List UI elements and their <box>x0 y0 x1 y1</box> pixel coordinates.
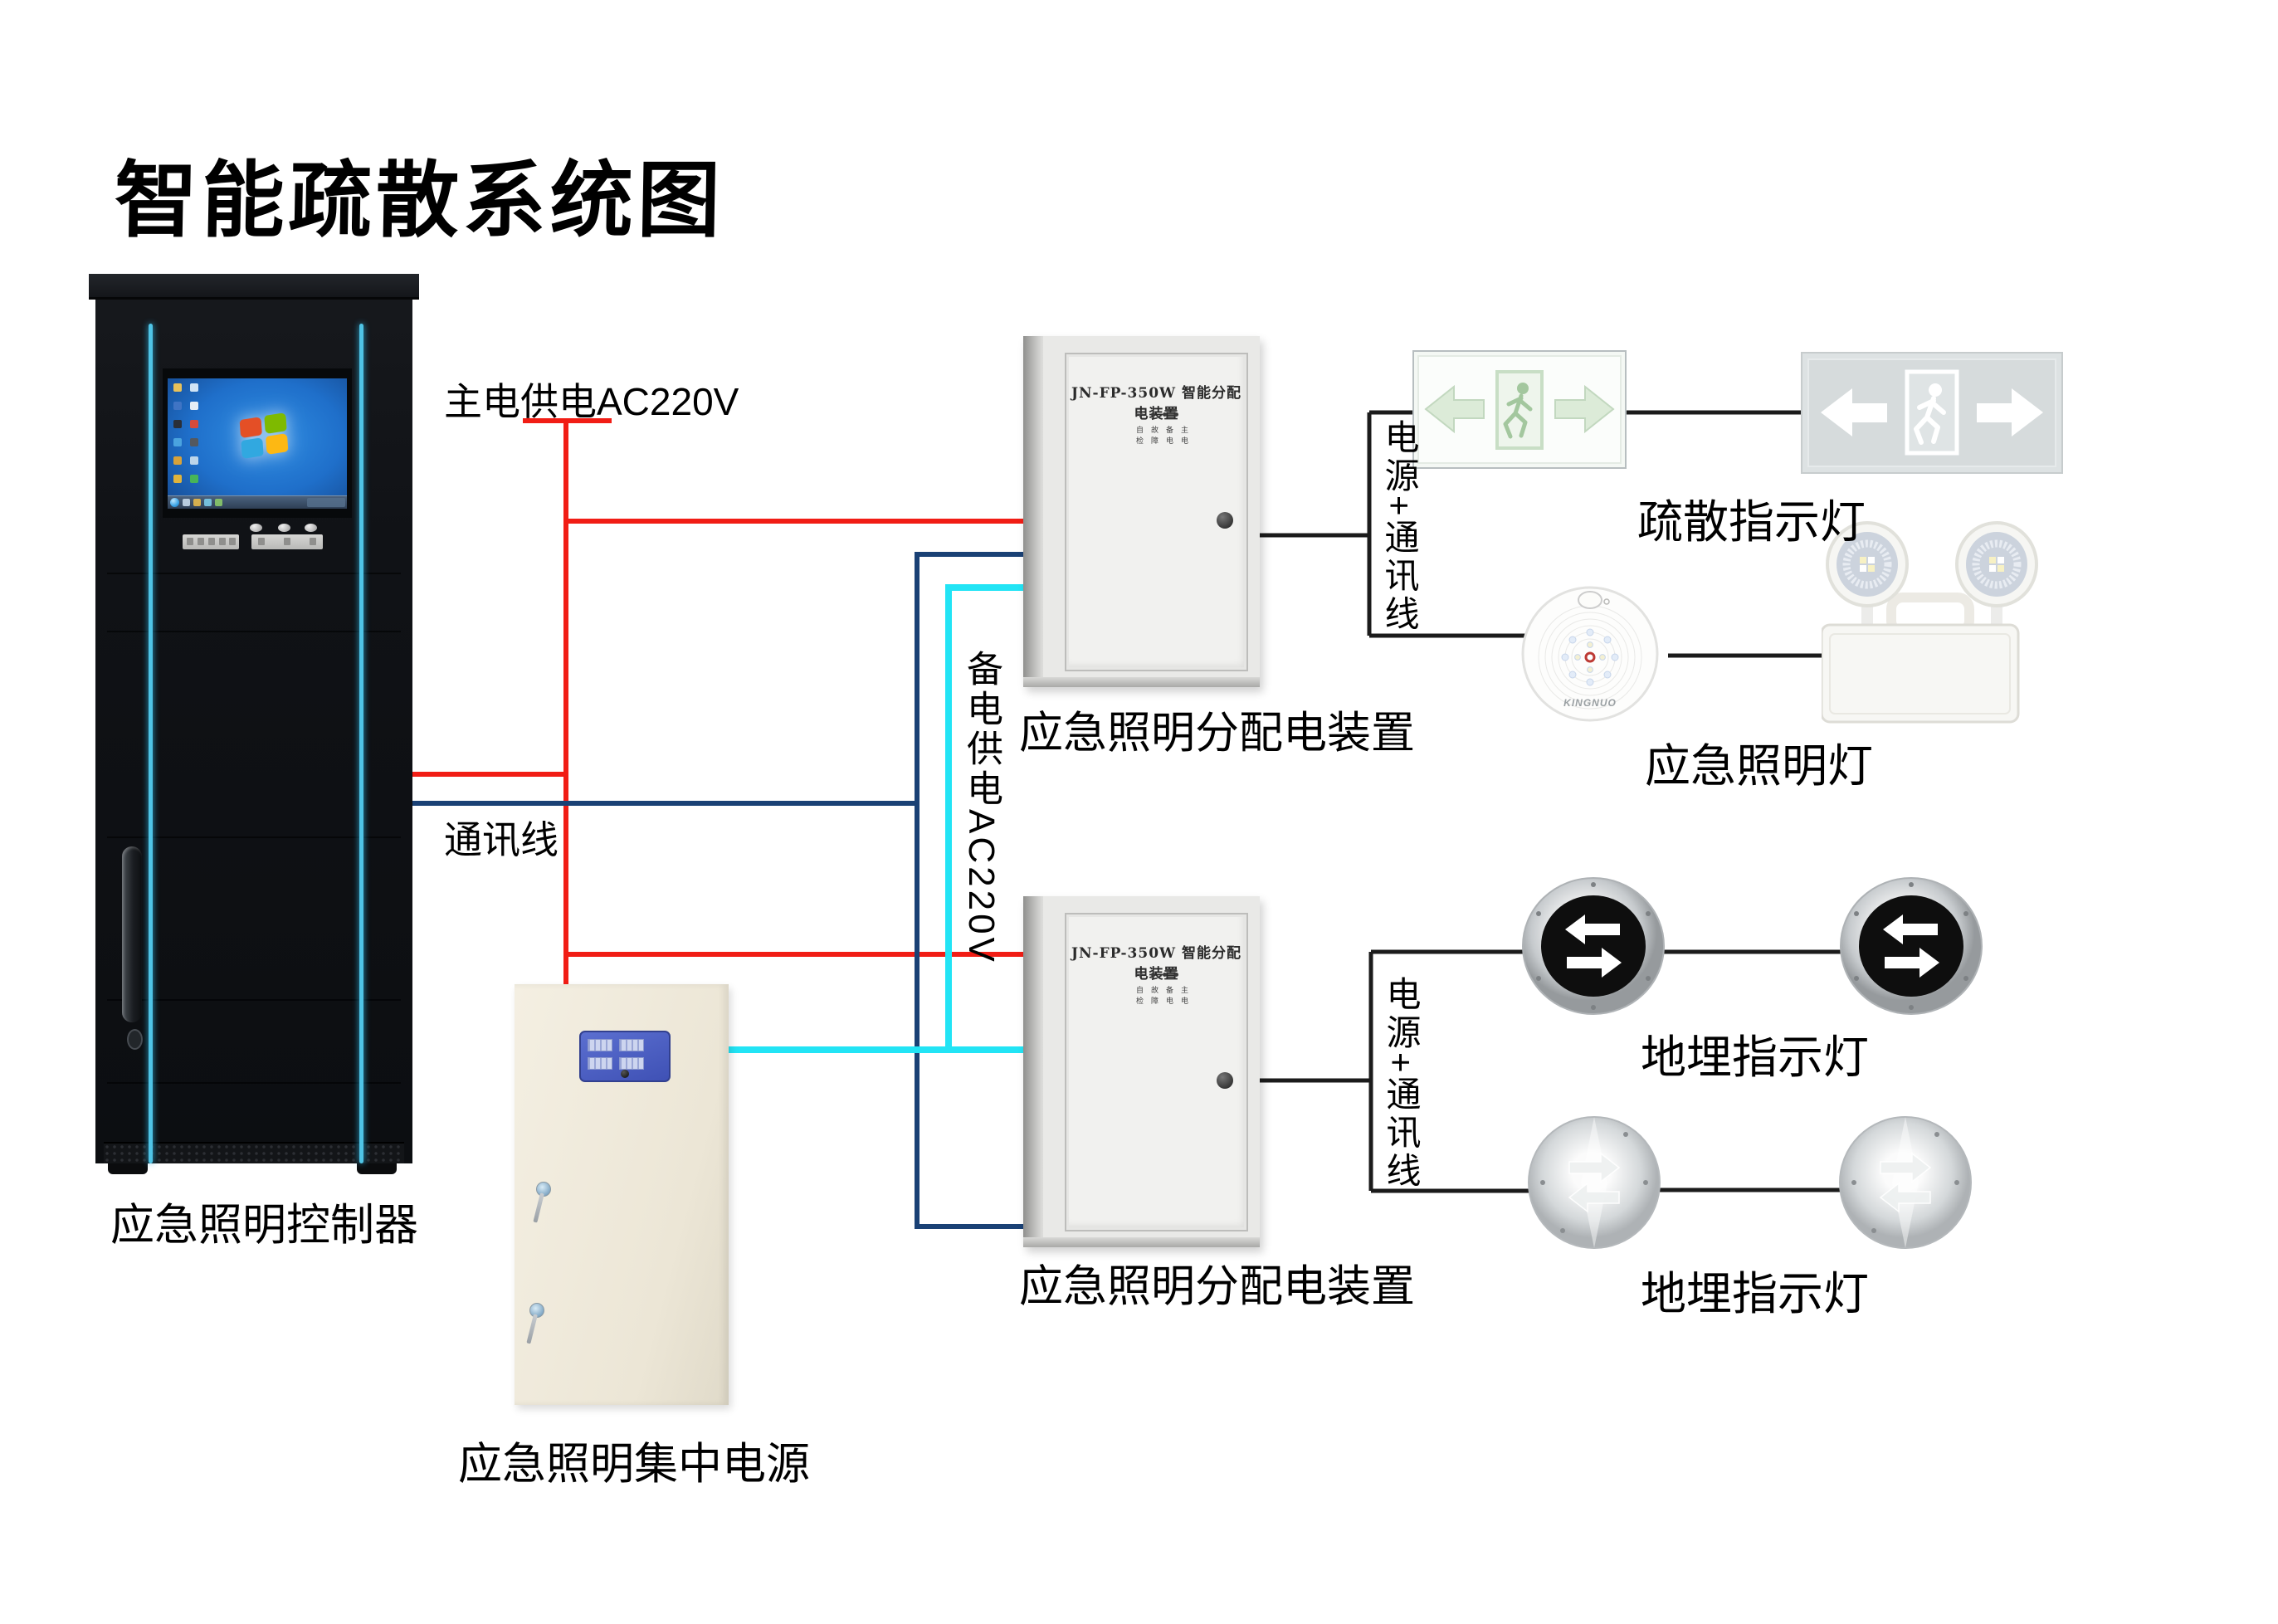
distribution-box-1: JN-FP-350W 智能分配电装置 ✛ 自故备主 检障电电 <box>1023 336 1260 687</box>
digital-display <box>619 1039 644 1051</box>
label-power-comm-1: 电源+通讯线 <box>1374 419 1425 634</box>
desktop-icon <box>173 383 182 392</box>
box-led-indicators: ✛ <box>1136 969 1178 980</box>
taskbar-icon <box>215 499 222 506</box>
desktop-icon <box>173 420 182 428</box>
key-icon <box>533 1192 544 1222</box>
system-tray <box>307 498 345 507</box>
cabinet-knob <box>278 524 290 532</box>
label-power-comm-2: 电源+通讯线 <box>1376 976 1427 1191</box>
taskbar-icon <box>193 499 201 506</box>
emergency-ceiling-lamp: KINGNUO <box>1521 585 1659 723</box>
running-man-icon <box>1907 372 1957 453</box>
box-indicator-label: 检障电电 <box>1136 995 1202 1006</box>
label-exit-sign: 疏散指示灯 <box>1637 485 1866 551</box>
box-indicator-label: 检障电电 <box>1136 435 1202 446</box>
desktop-icon <box>173 438 182 446</box>
twin-head-emergency-light <box>1822 521 2039 725</box>
ground-light-black-1 <box>1522 876 1665 1016</box>
label-main-power: 主电供电AC220V <box>444 372 739 427</box>
cabinet-knob <box>250 524 262 532</box>
cabinet-foot <box>108 1163 148 1174</box>
desktop-icon <box>190 420 198 428</box>
digital-display <box>588 1057 612 1070</box>
label-backup-power: 备电供电AC220V <box>954 650 1007 965</box>
desktop-icon <box>190 383 198 392</box>
ground-light-steel-2 <box>1839 1116 1972 1249</box>
taskbar-icon <box>183 499 190 506</box>
label-distribution-1: 应急照明分配电装置 <box>1019 698 1415 761</box>
desktop-icon <box>173 456 182 465</box>
label-distribution-2: 应急照明分配电装置 <box>1019 1251 1415 1314</box>
desktop-icon <box>190 475 198 483</box>
box-bottom-edge <box>1023 1237 1260 1247</box>
taskbar-icon <box>204 499 212 506</box>
running-man-icon <box>1497 372 1542 448</box>
box-indicator-label: 自故备主 <box>1136 424 1202 435</box>
box-indicator-label: 自故备主 <box>1136 984 1202 995</box>
lamp-head-right <box>1957 523 2037 606</box>
cabinet-keyhole <box>127 1029 143 1050</box>
cabinet-accent-right <box>359 324 363 1163</box>
box-side-panel <box>1023 336 1043 687</box>
windows-desktop-screen <box>168 378 347 509</box>
taskbar <box>168 495 347 509</box>
box-door: JN-FP-350W 智能分配电装置 ✛ 自故备主 检障电电 <box>1065 913 1248 1231</box>
box-bottom-edge <box>1023 677 1260 687</box>
lamp-test-button <box>1578 592 1602 608</box>
cabinet-door-handle <box>122 846 142 1022</box>
distribution-box-2: JN-FP-350W 智能分配电装置 ✛ 自故备主 检障电电 <box>1023 896 1260 1247</box>
box-led-indicators: ✛ <box>1136 409 1178 420</box>
label-ground-light-1: 地埋指示灯 <box>1641 1020 1869 1086</box>
desktop-icon <box>173 402 182 410</box>
panel-knob <box>621 1070 629 1078</box>
box-door: JN-FP-350W 智能分配电装置 ✛ 自故备主 检障电电 <box>1065 353 1248 671</box>
label-comm-line: 通讯线 <box>444 810 559 865</box>
central-power-box <box>515 984 729 1405</box>
power-box-keylock <box>536 1182 551 1197</box>
digital-display <box>619 1057 644 1070</box>
box-side-panel <box>1023 896 1043 1247</box>
cabinet-knob <box>305 524 317 532</box>
cabinet-socket-strip <box>183 534 239 549</box>
desktop-icon <box>190 402 198 410</box>
desktop-icon <box>173 475 182 483</box>
label-emergency-light: 应急照明灯 <box>1645 729 1873 795</box>
digital-display <box>588 1039 612 1051</box>
start-orb-icon <box>170 498 179 507</box>
power-box-keylock <box>529 1303 544 1318</box>
diagram-canvas: 智能疏散系统图 <box>0 0 2278 1624</box>
battery-body <box>1822 625 2018 722</box>
cabinet-accent-left <box>149 324 153 1163</box>
cabinet-foot <box>357 1163 397 1174</box>
label-ground-light-2: 地埋指示灯 <box>1641 1256 1869 1323</box>
power-box-control-panel <box>579 1031 671 1082</box>
controller-cabinet <box>95 276 412 1163</box>
key-icon <box>526 1314 538 1344</box>
lamp-center-dot <box>1586 653 1594 661</box>
ground-light-black-2 <box>1840 876 1983 1016</box>
desktop-icon <box>190 456 198 465</box>
ground-light-steel-1 <box>1528 1116 1661 1249</box>
box-lock-knob <box>1217 512 1233 529</box>
cabinet-top-cap <box>89 274 419 300</box>
lamp-brand-text: KINGNUO <box>1563 697 1617 709</box>
cabinet-socket-strip <box>251 534 323 549</box>
label-central-power: 应急照明集中电源 <box>458 1429 810 1492</box>
box-lock-knob <box>1217 1072 1233 1089</box>
windows-logo-icon <box>239 413 290 458</box>
exit-sign-unlit <box>1801 352 2063 474</box>
exit-sign-lit <box>1412 350 1627 469</box>
desktop-icon <box>190 438 198 446</box>
label-controller: 应急照明控制器 <box>110 1190 418 1253</box>
main-power-wires <box>407 421 1029 988</box>
